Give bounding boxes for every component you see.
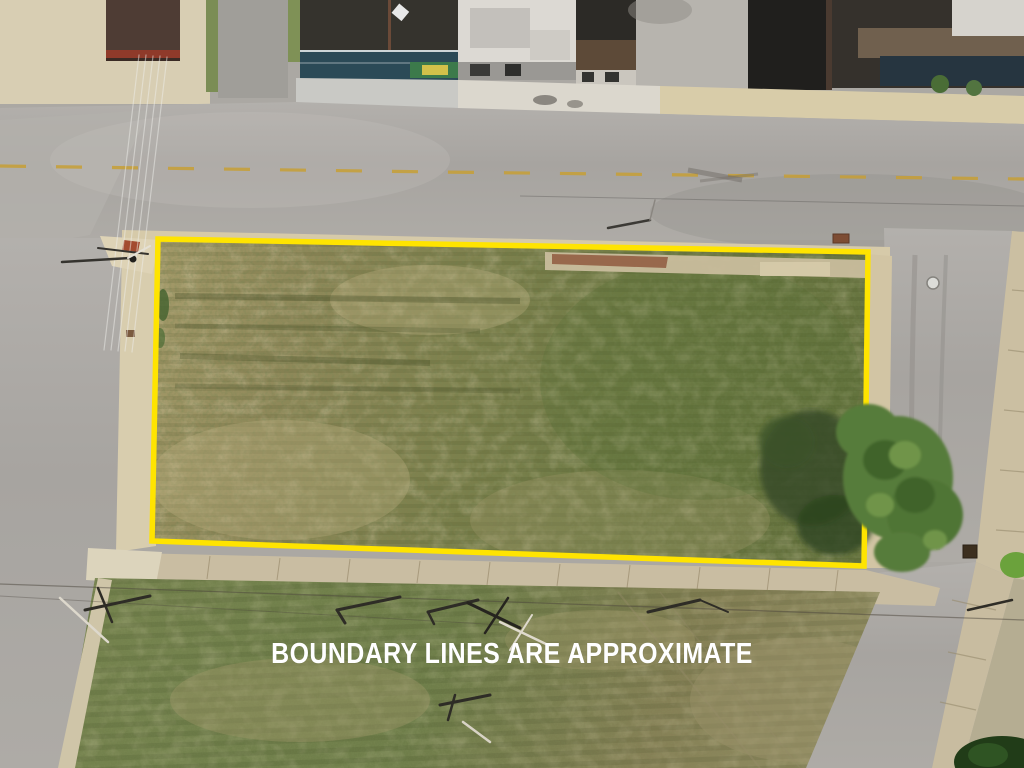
brown-roof-building [576,0,636,40]
black-tar-roofs [300,0,458,52]
grass-strip [206,0,218,92]
aerial-photo-frame: BOUNDARY LINES ARE APPROXIMATE [0,0,1024,768]
manhole-cover [927,277,939,289]
sidewalk-drain [833,234,849,243]
dark-building [748,0,832,90]
driveway [218,0,288,98]
boundary-disclaimer-text: BOUNDARY LINES ARE APPROXIMATE [72,638,953,671]
grass-strip [288,0,300,62]
street-tree [966,80,982,96]
vacant-lot [140,230,880,575]
street-tree [931,75,949,93]
utility-box [963,545,977,558]
